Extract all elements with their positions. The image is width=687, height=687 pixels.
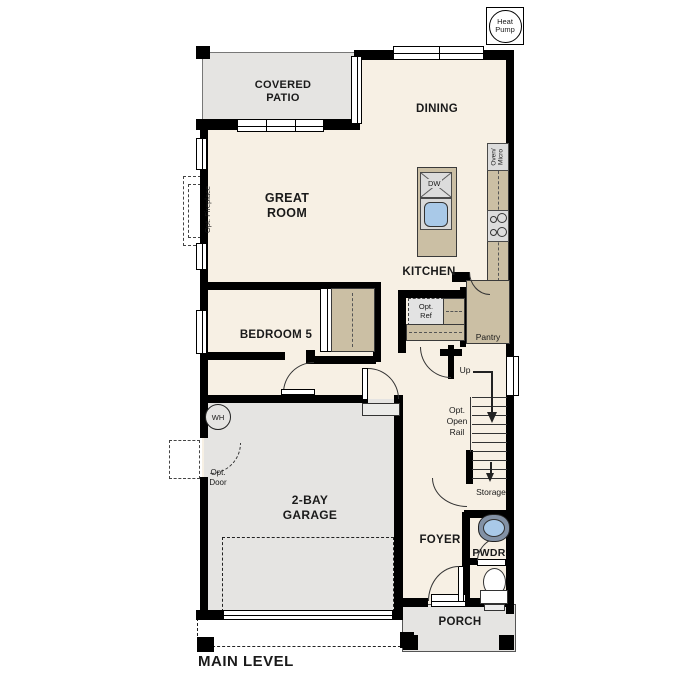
wall-hall-top	[314, 356, 376, 364]
cooktop	[487, 210, 509, 242]
wall-garage-right	[394, 395, 403, 610]
greatroom-window-lower	[196, 243, 207, 270]
closet-rod-dash	[352, 293, 353, 347]
window-mullion	[266, 120, 267, 131]
wall-garage-bottom-left	[196, 610, 223, 620]
great-room-label: GREAT ROOM	[227, 191, 347, 221]
wall-left-outer-lower	[200, 477, 208, 618]
dishwasher-label: DW	[427, 179, 442, 188]
burner	[490, 229, 497, 236]
opt-ref: Opt. Ref	[408, 298, 444, 326]
greatroom-window-upper	[196, 138, 207, 170]
bedroom5-door-leaf	[281, 389, 315, 395]
patio-sliding-door	[237, 119, 324, 132]
garage-door	[223, 610, 393, 620]
main-level-title: MAIN LEVEL	[198, 653, 338, 670]
burner	[490, 216, 497, 223]
counter-beside-ref	[443, 298, 465, 326]
counter-dash	[446, 311, 462, 312]
storage-label: Storage	[468, 487, 514, 497]
garage-door-overhead-outline	[222, 537, 394, 612]
opt-fireplace-label: Opt. Fireplace	[204, 185, 213, 232]
garage-entry-step	[362, 403, 400, 416]
oven-micro: Oven/ Micro	[487, 143, 509, 171]
window-mullion	[238, 126, 323, 127]
wall-bedroom-bottom	[200, 352, 285, 360]
counter-dash	[409, 332, 462, 333]
driveway-dash-bottom	[197, 646, 411, 648]
opt-door-outline	[169, 440, 200, 479]
heat-pump-label: Heat Pump	[495, 18, 515, 35]
dining-label: DINING	[387, 103, 487, 115]
burner	[497, 213, 507, 223]
floor-plan: DW Oven/ Micro Opt. Ref Pantry WH	[0, 0, 687, 687]
toilet-base	[484, 604, 505, 611]
water-heater-label: WH	[212, 413, 225, 422]
oven-micro-label: Oven/ Micro	[491, 148, 505, 165]
up-arrow-line-v	[491, 371, 493, 413]
patio-corner-post	[196, 46, 210, 59]
opt-open-rail-label: Opt. Open Rail	[441, 405, 473, 438]
up-arrow-head	[487, 412, 497, 423]
porch-post-left	[403, 635, 418, 650]
closet-shelf	[331, 288, 375, 352]
opt-ref-label: Opt. Ref	[409, 302, 443, 320]
pantry-label: Pantry	[467, 332, 509, 342]
bedroom5-label: BEDROOM 5	[216, 329, 336, 341]
counter-below-ref	[406, 324, 465, 341]
window-mullion	[295, 120, 296, 131]
foyer-label: FOYER	[390, 534, 490, 546]
window-mullion	[202, 244, 203, 269]
porch-post-right	[499, 635, 514, 650]
dishwasher: DW	[420, 172, 452, 198]
window-mullion	[513, 357, 514, 395]
burner	[497, 227, 507, 237]
window-mullion	[357, 57, 358, 123]
wall-foyer-bottom-left	[394, 598, 428, 607]
toilet-tank	[480, 590, 508, 604]
kitchen-label: KITCHEN	[379, 266, 479, 278]
up-label: Up	[450, 365, 480, 375]
heat-pump-badge: Heat Pump	[486, 7, 524, 45]
garage-door-line	[224, 615, 392, 616]
bedroom5-window	[196, 310, 207, 354]
pwdr-label: PWDR	[454, 547, 524, 559]
garage-label: 2-BAY GARAGE	[250, 493, 370, 523]
covered-patio-label: COVERED PATIO	[223, 79, 343, 104]
closet-door-line	[327, 289, 328, 351]
window-mullion	[202, 139, 203, 169]
dining-window	[393, 46, 484, 60]
water-heater: WH	[205, 404, 231, 430]
lower-arrow-head	[486, 473, 494, 482]
wall-garage-top	[204, 395, 368, 403]
opt-fireplace-label-wrap: Opt. Fireplace	[201, 172, 215, 246]
patio-side-door	[351, 56, 362, 124]
heat-pump-circle: Heat Pump	[489, 10, 522, 43]
wall-kitchen-left	[398, 290, 406, 353]
window-mullion	[439, 47, 440, 59]
stairs-window	[506, 356, 519, 396]
island-sink	[424, 202, 448, 227]
wall-kitchen-top	[398, 290, 466, 298]
wall-pwdr-door-stub	[462, 558, 478, 565]
porch-label: PORCH	[410, 616, 510, 628]
driveway-post-left	[197, 637, 214, 652]
opt-door-label: Opt. Door	[200, 468, 236, 488]
window-mullion	[202, 311, 203, 353]
